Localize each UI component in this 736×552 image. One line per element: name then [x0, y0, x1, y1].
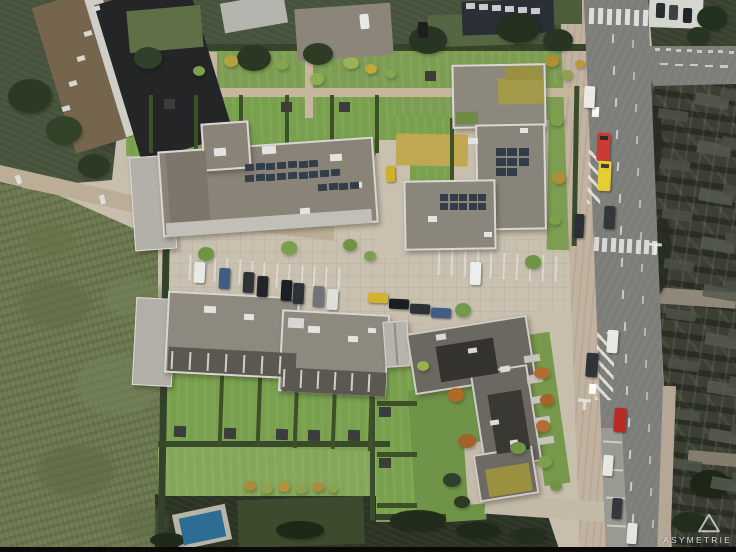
- lane-dashes-2: [645, 360, 647, 368]
- crosswalk-top: [625, 9, 631, 25]
- car-photo: [656, 3, 666, 18]
- tree-park-golden: [224, 55, 238, 67]
- give-way-dashes: [729, 51, 734, 54]
- car-parked-row: [218, 268, 230, 290]
- tree-row-golden: [261, 484, 273, 494]
- lane-dashes-2: [651, 520, 653, 528]
- solar-panels-a-row1: [298, 160, 307, 168]
- solar-panels-a-row3: [328, 183, 337, 191]
- tree-east-d-orange: [540, 394, 554, 406]
- meadow-blotch: [20, 280, 90, 328]
- lane-dashes-1: [631, 514, 633, 523]
- crosswalk-top: [634, 9, 640, 25]
- roof-unit: [330, 154, 342, 162]
- tree-courtyard-orange: [458, 434, 476, 448]
- solar-panels-b-1: [496, 148, 506, 156]
- tree-row-golden: [244, 481, 256, 491]
- give-way-dashes: [676, 49, 681, 52]
- tree-row-golden: [328, 485, 338, 493]
- crosswalk-mid: [652, 240, 657, 254]
- solar-panels-b-1: [507, 148, 517, 156]
- solar-panels-a-row1: [266, 162, 275, 170]
- crosswalk-mid: [594, 237, 599, 251]
- tree-street: [281, 241, 297, 255]
- side-road-dashes: [690, 64, 698, 66]
- meadow-blotch: [25, 225, 75, 257]
- side-road-dashes: [675, 64, 683, 66]
- car-parked-row: [280, 280, 292, 302]
- tree-row-golden: [312, 482, 324, 492]
- tree-row-golden: [295, 484, 307, 494]
- roof-unit: [484, 232, 492, 237]
- crosswalk-top: [616, 9, 622, 25]
- tree-courtyard: [417, 361, 429, 371]
- solar-roof-panels: [466, 3, 475, 9]
- garden-shed: [224, 428, 236, 439]
- lane-dashes-1: [618, 194, 620, 203]
- solar-panels-a-row3: [339, 182, 348, 190]
- van-white: [470, 262, 482, 285]
- lane-dashes-2: [632, 40, 634, 48]
- solar-panels-a-row1: [255, 163, 264, 171]
- crosswalk-mid: [635, 239, 640, 253]
- lane-dashes-2: [640, 232, 642, 240]
- meadow-blotch: [38, 445, 114, 497]
- roof-unit: [300, 208, 310, 215]
- car-gray: [410, 303, 430, 314]
- crosswalk-mid: [619, 238, 624, 252]
- crosswalk-mid: [610, 238, 615, 252]
- solar-panels-b-5: [440, 203, 448, 210]
- lane-dashes-2: [649, 456, 651, 464]
- tree-photo-bottom: [510, 528, 546, 542]
- garden-shed: [339, 102, 350, 112]
- road-letter-bus-2: B: [589, 384, 597, 394]
- tree-photo: [543, 29, 573, 51]
- tree-photo: [237, 45, 271, 71]
- tree-east-d-orange: [534, 367, 550, 379]
- tree-photo: [78, 154, 110, 178]
- tree-photo: [8, 79, 52, 113]
- roof-unit: [262, 146, 277, 155]
- side-road-dashes: [660, 63, 668, 65]
- tree-south: [550, 481, 562, 491]
- lawn-patch-1: [126, 5, 203, 53]
- roof-unit: [244, 314, 254, 321]
- tree-street: [455, 303, 471, 317]
- solar-roof-panels: [531, 8, 540, 14]
- roof-unit: [520, 128, 528, 133]
- hedges-gardens-a: [194, 95, 198, 153]
- tree-east-b-golden: [552, 172, 566, 184]
- give-way-dashes: [697, 50, 702, 53]
- solar-panels-a-row2: [288, 172, 297, 180]
- tree-south: [538, 456, 552, 468]
- car-white-2: [606, 330, 619, 354]
- hedges-gardens-a: [375, 95, 379, 153]
- crosswalk-top: [643, 10, 649, 26]
- solar-panels-b-3: [507, 168, 517, 176]
- tree-park: [386, 70, 396, 78]
- solar-roof-panels: [479, 4, 488, 10]
- solar-panels-a-row2: [298, 171, 307, 179]
- solar-panels-b-5: [450, 203, 458, 210]
- solar-panels-b-2: [507, 158, 517, 166]
- hedge-common-green: [158, 441, 390, 447]
- lane-dashes-2: [634, 104, 636, 112]
- solar-panels-a-row3: [318, 184, 327, 192]
- roof-unit: [468, 138, 478, 144]
- roof-unit: [204, 306, 216, 314]
- building-b-green-roof: [456, 112, 478, 124]
- solar-panels-b-4: [469, 194, 477, 201]
- roof-unit: [214, 148, 227, 157]
- car-parked-dark-2: [611, 498, 622, 520]
- tree-south-dark: [443, 473, 461, 487]
- garden-shed: [348, 430, 360, 441]
- solar-panels-b-1: [519, 148, 529, 156]
- roof-unit: [428, 216, 437, 222]
- hedges-gardens-a: [149, 95, 153, 153]
- car-layby-dark: [585, 353, 599, 378]
- tree-photo: [134, 47, 162, 69]
- tree-park-golden: [365, 64, 377, 74]
- crosswalk-mid: [643, 240, 648, 254]
- car-parked-row: [292, 283, 304, 305]
- give-way-dashes: [655, 48, 660, 51]
- side-road-dashes: [720, 65, 728, 67]
- car-red: [613, 408, 627, 433]
- garden-shed: [276, 429, 288, 440]
- car-white: [583, 86, 595, 109]
- tree-photo-bottom: [276, 521, 324, 539]
- solar-panels-a-row3: [350, 182, 359, 190]
- car-parked-row: [242, 272, 254, 294]
- lane-dashes-1: [616, 130, 618, 139]
- tree-south-dark: [454, 496, 470, 508]
- garden-shed: [425, 71, 436, 81]
- garden-shed: [379, 458, 391, 468]
- bus-window: [601, 164, 609, 168]
- tree-photo-bottom: [456, 522, 500, 538]
- car-parked-row: [312, 286, 324, 308]
- give-way-dashes: [718, 50, 723, 53]
- tree-photo-bottom: [390, 510, 446, 530]
- garden-shed: [281, 102, 292, 112]
- lane-dashes-2: [636, 136, 638, 144]
- tree-courtyard-orange: [448, 388, 464, 402]
- tree-east-d-orange: [536, 420, 550, 432]
- tree-street: [198, 247, 214, 261]
- building-b-sedum-roof: [498, 78, 544, 105]
- van-dark-photo: [418, 22, 429, 39]
- car-parked-white-2: [602, 455, 613, 477]
- give-way-dashes: [687, 49, 692, 52]
- solar-panels-b-5: [478, 203, 486, 210]
- solar-panels-a-row2: [309, 170, 318, 178]
- solar-panels-a-row2: [255, 174, 264, 182]
- solar-panels-b-4: [478, 194, 486, 201]
- building-a-roof-dark: [165, 151, 210, 228]
- garden-shed: [164, 99, 175, 109]
- tree-photo: [303, 43, 333, 65]
- lane-dashes-1: [623, 322, 625, 331]
- lane-dashes-1: [620, 226, 622, 235]
- solar-panels-b-2: [496, 158, 506, 166]
- roof-unit: [368, 328, 376, 333]
- road-letter-bus-1: B: [592, 107, 600, 117]
- tree-south: [510, 442, 526, 454]
- solar-panels-b-5: [459, 203, 467, 210]
- solar-panels-a-row2: [330, 169, 339, 177]
- solar-panels-a-row2: [320, 170, 329, 178]
- solar-panels-a-row1: [277, 162, 286, 170]
- solar-panels-b-3: [496, 168, 506, 176]
- give-way-dashes: [708, 50, 713, 53]
- crosswalk-top: [607, 9, 613, 25]
- tree-park-golden: [545, 55, 559, 67]
- common-green-south: [158, 444, 390, 496]
- side-road-dashes: [705, 65, 713, 67]
- car-photo: [669, 5, 679, 20]
- garden-shed: [308, 430, 320, 441]
- give-way-dashes: [666, 48, 671, 51]
- car-dark: [603, 206, 615, 230]
- building-b-sedum-roof-2: [506, 66, 542, 81]
- solar-panels-a-row1: [309, 159, 318, 167]
- solar-panels-a-row2: [266, 173, 275, 181]
- roof-unit: [308, 326, 320, 334]
- tree-park-golden: [575, 60, 585, 68]
- tree-photo: [697, 6, 727, 30]
- solar-panels-a-row2: [245, 175, 254, 183]
- site-plan-aerial-render: ASYMETRIE BB: [0, 0, 736, 552]
- solar-roof-panels: [492, 5, 501, 11]
- roof-unit: [348, 336, 358, 343]
- tree-photo: [687, 27, 709, 45]
- tree-street: [525, 255, 541, 269]
- tree-photo-corner: [672, 512, 706, 532]
- tree-street: [364, 251, 376, 261]
- hedges-gardens-d: [377, 452, 417, 457]
- garden-shed: [379, 407, 391, 417]
- lane-dashes-1: [614, 98, 616, 107]
- letterbox-bar: [0, 547, 736, 552]
- solar-panels-b-2: [519, 158, 529, 166]
- solar-panels-b-4: [450, 194, 458, 201]
- car-parked-dark: [573, 214, 584, 238]
- dry-lawn: [396, 133, 469, 166]
- hedges-gardens-d: [377, 401, 417, 406]
- car-parked-row: [193, 262, 205, 284]
- building-b-west-wing: [403, 179, 496, 251]
- car-black: [389, 298, 409, 309]
- tree-photo: [496, 13, 540, 43]
- lane-dashes-1: [627, 418, 629, 427]
- tree-east-b: [549, 215, 561, 225]
- van-white-photo: [359, 14, 370, 30]
- car-yellow-small: [386, 166, 396, 182]
- tree-park: [193, 66, 205, 76]
- bus-windshield: [600, 136, 608, 140]
- solar-panels-a-row1: [288, 161, 297, 169]
- solar-panels-a-row1: [245, 164, 254, 172]
- lane-dashes-2: [638, 200, 640, 208]
- solar-roof-panels: [505, 6, 514, 12]
- tree-park: [276, 60, 288, 70]
- car-photo: [683, 8, 693, 23]
- solar-roof-panels: [518, 7, 527, 13]
- building-c-stair: [288, 318, 305, 329]
- lane-dashes-1: [629, 450, 631, 459]
- hedges-gardens-d: [377, 503, 417, 508]
- lane-dashes-2: [643, 328, 645, 336]
- tree-street: [343, 239, 357, 251]
- car-yellow: [368, 292, 388, 303]
- crosswalk-top: [598, 8, 604, 24]
- solar-panels-a-row2: [277, 173, 286, 181]
- car-blue: [431, 307, 451, 318]
- solar-panels-b-4: [440, 194, 448, 201]
- tree-photo-bottom: [150, 533, 186, 547]
- solar-panels-b-4: [459, 194, 467, 201]
- tree-row-golden: [278, 482, 290, 492]
- lane-dashes-2: [647, 424, 649, 432]
- car-parked-row: [256, 276, 268, 298]
- car-parked-white-3: [626, 523, 637, 545]
- garden-shed: [174, 426, 186, 437]
- car-parked-row: [326, 289, 338, 311]
- tree-park: [343, 57, 359, 69]
- tree-photo: [46, 116, 82, 144]
- tree-east-b: [550, 114, 564, 126]
- crosswalk-top: [589, 8, 595, 24]
- tree-park: [310, 73, 324, 85]
- tree-park: [561, 70, 573, 80]
- solar-panels-b-5: [469, 203, 477, 210]
